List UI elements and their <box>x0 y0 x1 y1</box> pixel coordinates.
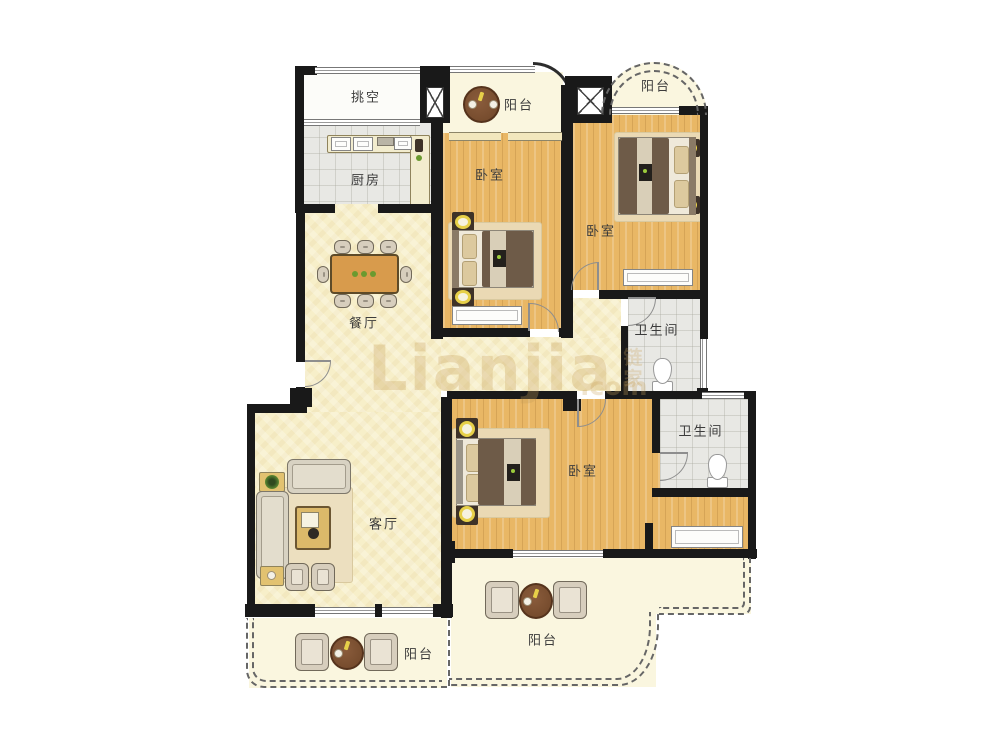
stove-burners <box>331 137 351 151</box>
dining-chair <box>334 240 351 254</box>
pillow <box>674 180 689 208</box>
nightstand-lamp <box>452 287 474 307</box>
floor-plan: 挑空 阳台 阳台 厨房 卧室 卧室 餐厅 卫生间 卫生间 客厅 卧室 阳台 阳台… <box>0 0 1004 753</box>
wall-segment <box>378 204 433 213</box>
pillow <box>674 146 689 174</box>
kitchen-sink <box>394 137 412 150</box>
pillow <box>462 234 477 259</box>
wall-segment <box>561 85 573 338</box>
shaft-x-icon <box>426 87 444 118</box>
wall-segment <box>700 299 708 339</box>
wall-segment <box>748 391 756 559</box>
dining-table-decor <box>352 271 358 277</box>
balcony-sill <box>449 132 501 141</box>
wall-segment <box>247 404 255 616</box>
room-label-balcony-bottom-right: 阳台 <box>528 630 558 649</box>
room-label-balcony-top: 阳台 <box>504 95 534 114</box>
coffee-table-tray <box>301 512 319 528</box>
room-label-bedroom-right: 卧室 <box>586 221 616 240</box>
balcony-rail <box>659 558 745 609</box>
low-cabinet <box>452 306 522 325</box>
dining-table-decor <box>370 271 376 277</box>
window <box>315 67 422 74</box>
cup <box>468 100 477 109</box>
bed-headboard <box>689 137 696 215</box>
bed-tray <box>493 250 506 267</box>
cup <box>523 597 532 606</box>
ottoman <box>311 563 335 591</box>
bed-tray <box>507 464 520 481</box>
wall-segment <box>295 66 304 212</box>
kitchen-plant <box>416 155 422 161</box>
room-label-living: 客厅 <box>369 514 399 533</box>
ottoman <box>285 563 309 591</box>
wall-segment <box>559 328 573 337</box>
corridor-floor <box>441 337 621 391</box>
room-label-balcony-top-right: 阳台 <box>641 76 671 95</box>
teapot <box>308 528 319 539</box>
low-cabinet <box>623 269 693 286</box>
sofa-loveseat <box>287 459 351 494</box>
window-seat <box>671 526 743 548</box>
stove-burners <box>353 137 373 151</box>
cup <box>489 100 498 109</box>
dining-chair <box>380 240 397 254</box>
wall-segment <box>375 604 382 617</box>
plant <box>265 475 279 489</box>
window <box>304 119 420 126</box>
kitchen-bottle <box>415 139 423 152</box>
wall-segment <box>621 326 628 392</box>
wall-pier <box>645 523 653 551</box>
wall-segment <box>245 604 315 617</box>
window <box>315 607 375 614</box>
wall-segment <box>296 204 305 362</box>
dining-table-decor <box>361 271 367 277</box>
dining-chair <box>400 266 412 283</box>
room-label-void: 挑空 <box>351 87 381 106</box>
nightstand-lamp <box>456 503 478 525</box>
room-label-dining: 餐厅 <box>349 313 379 332</box>
room-label-bath-upper: 卫生间 <box>634 320 679 339</box>
window <box>700 339 707 388</box>
pillow <box>462 261 477 286</box>
room-label-bedroom-top: 卧室 <box>475 165 505 184</box>
nightstand-lamp <box>456 418 478 440</box>
window <box>450 66 535 73</box>
room-label-balcony-bottom-left: 阳台 <box>404 644 434 663</box>
hallway-floor <box>573 298 621 338</box>
dining-chair <box>317 266 329 283</box>
cup <box>267 571 276 580</box>
dining-chair <box>380 294 397 308</box>
wall-segment <box>700 106 708 299</box>
bed-headboard <box>456 440 463 504</box>
room-label-kitchen: 厨房 <box>351 170 381 189</box>
room-dining-floor <box>305 204 441 414</box>
wall-segment <box>441 397 452 618</box>
wall-segment <box>441 549 513 558</box>
room-label-bedroom-master: 卧室 <box>568 461 598 480</box>
balcony-sill <box>508 132 562 141</box>
window <box>513 550 603 557</box>
bed-headboard <box>452 230 459 288</box>
window <box>702 392 744 399</box>
wall-segment <box>652 488 756 497</box>
wall-segment <box>605 391 621 399</box>
nightstand-lamp <box>452 212 474 232</box>
room-label-bath-lower: 卫生间 <box>678 421 723 440</box>
range-hood <box>377 137 394 146</box>
wall-segment <box>603 549 757 558</box>
dining-chair <box>334 294 351 308</box>
window <box>382 607 433 614</box>
wall-segment <box>431 118 443 339</box>
wall-segment <box>432 328 530 337</box>
wall-segment <box>652 399 660 453</box>
dining-chair <box>357 294 374 308</box>
shaft-x-icon <box>577 87 604 115</box>
wall-segment <box>247 404 307 413</box>
bed-tray <box>639 164 652 181</box>
wall-segment <box>447 391 577 399</box>
dining-chair <box>357 240 374 254</box>
